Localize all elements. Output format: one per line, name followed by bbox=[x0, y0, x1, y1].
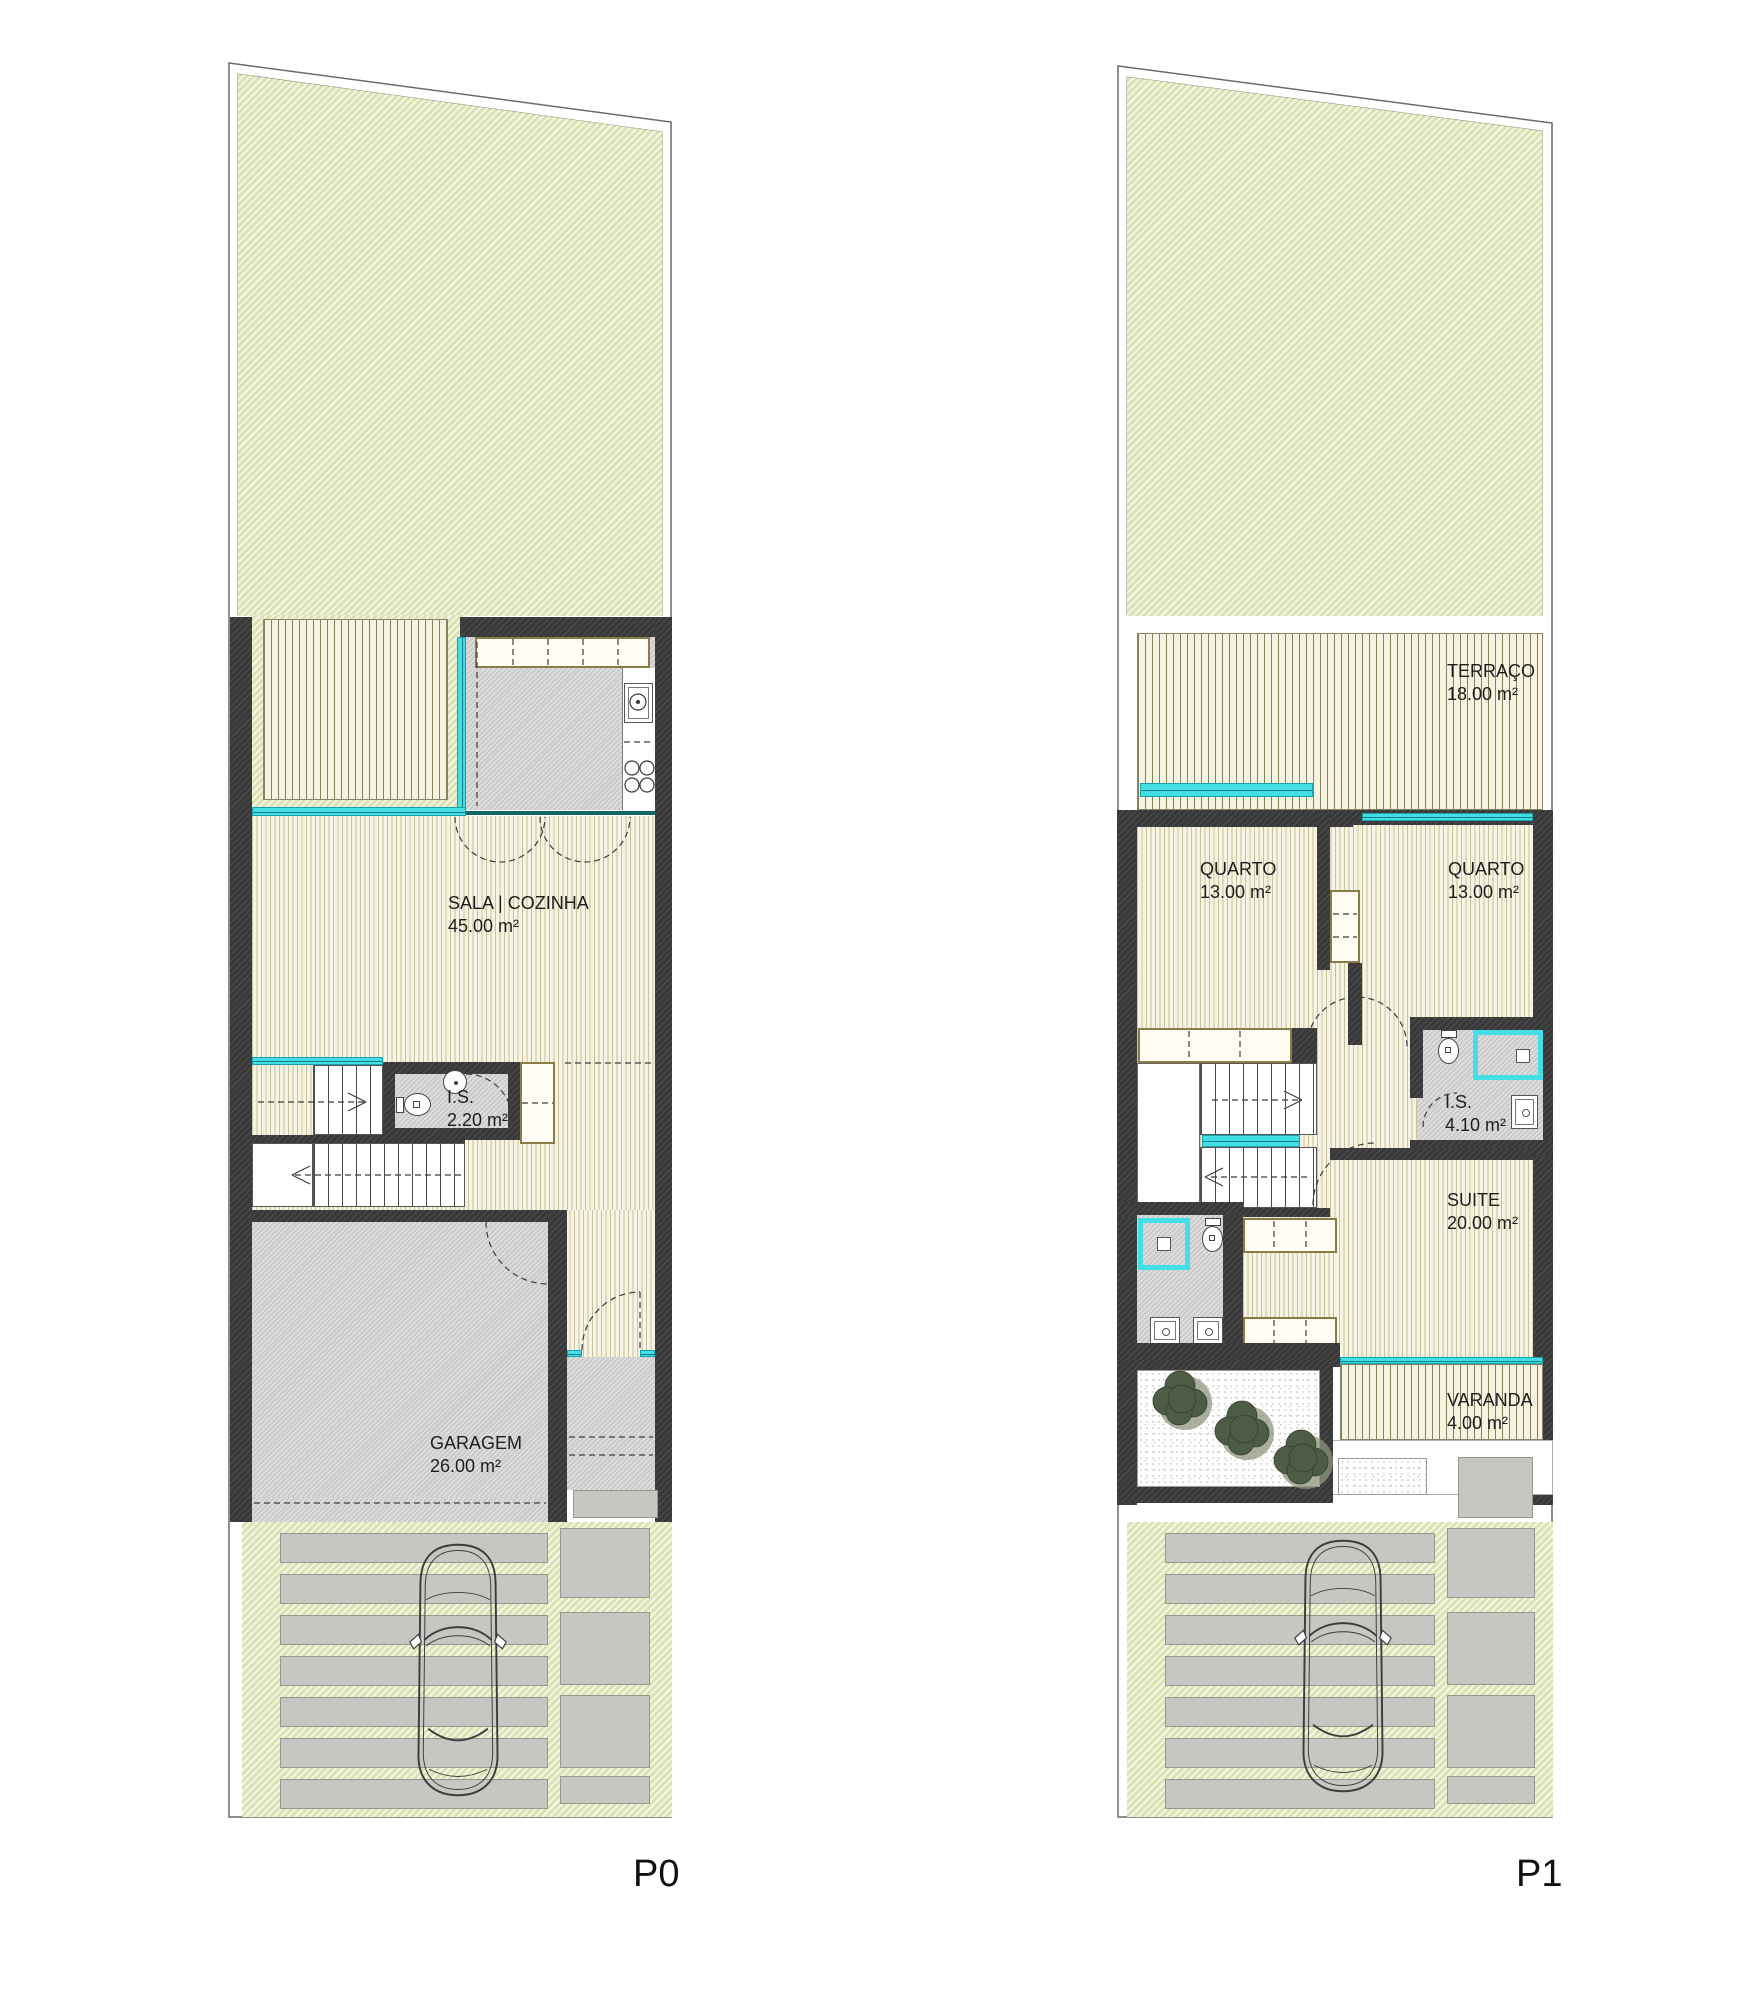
shower bbox=[1473, 1030, 1543, 1080]
room-name: VARANDA bbox=[1447, 1389, 1533, 1412]
garage-right-wall bbox=[548, 1210, 567, 1522]
gravel-patch bbox=[1338, 1458, 1427, 1495]
central-wall bbox=[1317, 810, 1330, 970]
dressing-floor bbox=[1243, 1253, 1337, 1317]
bedroom-window-left bbox=[1140, 783, 1313, 797]
stair-glass-partition bbox=[252, 1057, 383, 1065]
glazing-deck-front bbox=[252, 807, 466, 816]
toilet-drain bbox=[1209, 1235, 1215, 1241]
paving-slab bbox=[560, 1612, 650, 1685]
room-name: I.S. bbox=[447, 1086, 508, 1109]
paving-slab bbox=[1447, 1695, 1535, 1768]
room-label-garagem: GARAGEM 26.00 m² bbox=[430, 1432, 522, 1478]
shower-drain bbox=[1157, 1237, 1171, 1251]
shower bbox=[1138, 1218, 1190, 1270]
washbasin bbox=[1511, 1095, 1538, 1129]
paving-slab bbox=[1458, 1457, 1533, 1518]
room-area: 13.00 m² bbox=[1200, 881, 1276, 904]
room-name: TERRAÇO bbox=[1447, 660, 1535, 683]
toilet-drain bbox=[413, 1101, 420, 1108]
car-icon bbox=[405, 1537, 511, 1803]
basin-drain bbox=[1522, 1109, 1530, 1117]
sink-icon bbox=[624, 683, 653, 723]
room-label-suite: SUITE 20.00 m² bbox=[1447, 1189, 1518, 1235]
bedroom-window-right bbox=[1362, 813, 1533, 821]
room-label-is: I.S. 4.10 m² bbox=[1445, 1091, 1506, 1137]
toilet-tank bbox=[396, 1097, 404, 1113]
room-label-varanda: VARANDA 4.00 m² bbox=[1447, 1389, 1533, 1435]
room-name: I.S. bbox=[1445, 1091, 1506, 1114]
light-center-dot bbox=[454, 1081, 458, 1085]
stair-landing bbox=[1137, 1063, 1200, 1208]
corridor-floor bbox=[565, 1210, 655, 1357]
varanda-glazing bbox=[1340, 1357, 1543, 1364]
deck-terrace bbox=[263, 619, 448, 800]
suite-bath-top-wall bbox=[1117, 1202, 1243, 1215]
toilet-icon bbox=[1437, 1030, 1461, 1066]
stairs-upper-flight bbox=[313, 1065, 383, 1135]
room-area: 20.00 m² bbox=[1447, 1212, 1518, 1235]
toilet-icon bbox=[1201, 1218, 1225, 1254]
stairs-lower-flight bbox=[1200, 1147, 1317, 1208]
closet-end-wall bbox=[1292, 1028, 1317, 1063]
glazing-deck-side bbox=[457, 637, 466, 815]
entry-landing bbox=[567, 1357, 655, 1490]
room-area: 13.00 m² bbox=[1448, 881, 1524, 904]
wall-right bbox=[655, 617, 672, 1522]
entry-glazing-right bbox=[640, 1350, 655, 1357]
room-name: SALA | COZINHA bbox=[448, 892, 589, 915]
paving-slab bbox=[1447, 1528, 1535, 1598]
room-area: 4.10 m² bbox=[1445, 1114, 1506, 1137]
floor-plan-p1: TERRAÇO 18.00 m² QUARTO 13.00 m² QUARTO … bbox=[1117, 65, 1561, 1818]
garage-top-wall bbox=[252, 1210, 548, 1222]
paving-slab bbox=[1447, 1776, 1535, 1804]
entry-glazing-left bbox=[567, 1350, 582, 1357]
toilet-drain bbox=[1445, 1047, 1451, 1053]
basin-drain bbox=[1205, 1328, 1213, 1336]
toilet-icon bbox=[396, 1093, 432, 1117]
paving-slab bbox=[560, 1528, 650, 1598]
bathroom-top-wall bbox=[1410, 1017, 1553, 1030]
washbasin bbox=[1193, 1317, 1223, 1344]
corner-block-left bbox=[230, 1490, 252, 1522]
room-label-is: I.S. 2.20 m² bbox=[447, 1086, 508, 1132]
room-area: 2.20 m² bbox=[447, 1109, 508, 1132]
room-area: 18.00 m² bbox=[1447, 683, 1535, 706]
shower-drain bbox=[1516, 1049, 1530, 1063]
wall-top-kitchen bbox=[460, 617, 672, 637]
central-closet bbox=[1330, 890, 1360, 963]
room-area: 4.00 m² bbox=[1447, 1412, 1533, 1435]
room-name: SUITE bbox=[1447, 1189, 1518, 1212]
basin-drain bbox=[1162, 1328, 1170, 1336]
stairs-lower-flight bbox=[313, 1143, 465, 1207]
entry-slab bbox=[573, 1490, 658, 1518]
bathroom-left-wall bbox=[1410, 1030, 1423, 1098]
room-area: 45.00 m² bbox=[448, 915, 589, 938]
stair-glass-rail bbox=[1202, 1135, 1300, 1147]
suite-closet-top bbox=[1243, 1218, 1337, 1253]
central-wall-lower bbox=[1348, 963, 1362, 1045]
floor-label-p0: P0 bbox=[633, 1853, 679, 1896]
kitchen-cabinet-run bbox=[475, 637, 650, 668]
stair-landing bbox=[252, 1143, 313, 1207]
car-icon bbox=[1290, 1533, 1396, 1799]
garage-apron bbox=[252, 1497, 548, 1522]
room-label-terraco: TERRAÇO 18.00 m² bbox=[1447, 660, 1535, 706]
room-area: 26.00 m² bbox=[430, 1455, 522, 1478]
garden-area bbox=[228, 62, 672, 622]
room-name: QUARTO bbox=[1448, 858, 1524, 881]
toilet-tank bbox=[1205, 1218, 1221, 1226]
room-name: GARAGEM bbox=[430, 1432, 522, 1455]
floor-plan-p0: SALA | COZINHA 45.00 m² I.S. 2.20 m² GAR… bbox=[228, 62, 672, 1818]
hall-closet bbox=[520, 1062, 555, 1144]
stairs-upper-flight bbox=[1200, 1063, 1317, 1135]
room-label-sala-cozinha: SALA | COZINHA 45.00 m² bbox=[448, 892, 589, 938]
bedroom-closet-row bbox=[1138, 1028, 1292, 1063]
room-name: QUARTO bbox=[1200, 858, 1276, 881]
room-label-quarto-dir: QUARTO 13.00 m² bbox=[1448, 858, 1524, 904]
paving-slab bbox=[560, 1776, 650, 1804]
washbasin bbox=[1150, 1317, 1180, 1344]
suite-top-wall bbox=[1330, 1148, 1533, 1160]
floor-label-p1: P1 bbox=[1516, 1853, 1562, 1896]
paving-slab bbox=[1447, 1612, 1535, 1685]
garden-area bbox=[1117, 65, 1553, 621]
sink-basin bbox=[628, 687, 649, 719]
toilet-tank bbox=[1441, 1030, 1457, 1038]
room-label-quarto-esq: QUARTO 13.00 m² bbox=[1200, 858, 1276, 904]
kitchen-window-frame bbox=[466, 811, 655, 815]
bath-wardrobe-divider bbox=[1223, 1215, 1243, 1343]
courtyard-ground bbox=[1137, 1370, 1320, 1487]
drawing-sheet: SALA | COZINHA 45.00 m² I.S. 2.20 m² GAR… bbox=[0, 0, 1756, 2000]
paving-slab bbox=[560, 1695, 650, 1768]
wall-left bbox=[230, 617, 252, 1510]
